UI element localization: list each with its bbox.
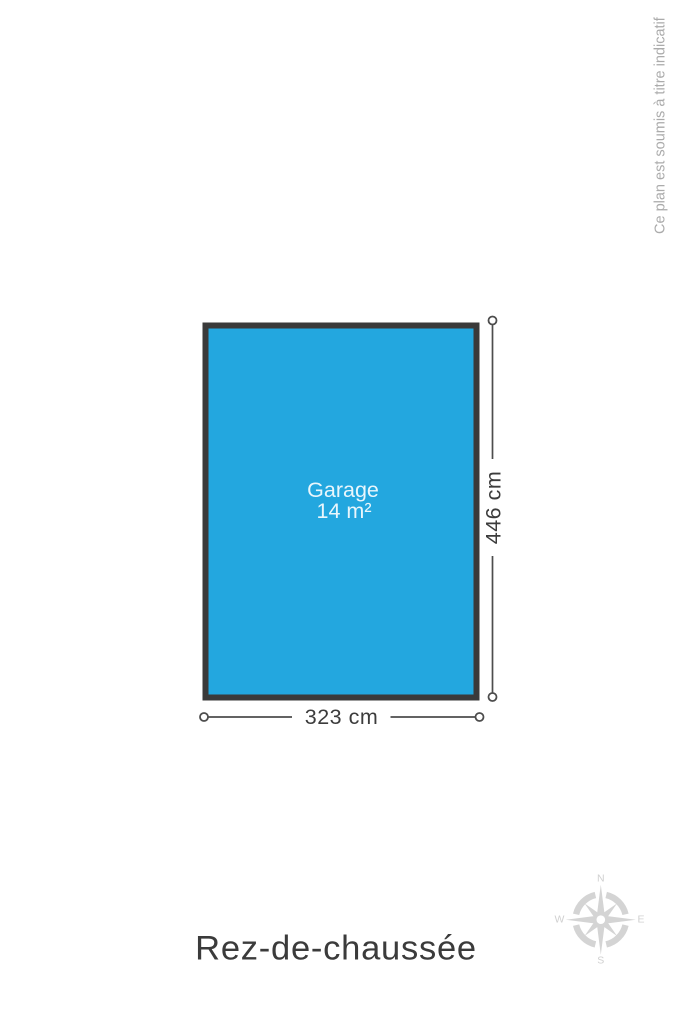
svg-text:N: N bbox=[597, 873, 605, 885]
svg-text:Ce plan est soumis à titre ind: Ce plan est soumis à titre indicatif bbox=[653, 16, 669, 234]
svg-text:14 m²: 14 m² bbox=[317, 499, 372, 523]
svg-text:W: W bbox=[554, 914, 564, 926]
svg-text:446 cm: 446 cm bbox=[482, 471, 506, 545]
svg-text:E: E bbox=[637, 914, 644, 926]
svg-text:323 cm: 323 cm bbox=[305, 705, 379, 729]
svg-text:S: S bbox=[597, 955, 604, 967]
svg-text:Rez-de-chaussée: Rez-de-chaussée bbox=[195, 930, 477, 968]
